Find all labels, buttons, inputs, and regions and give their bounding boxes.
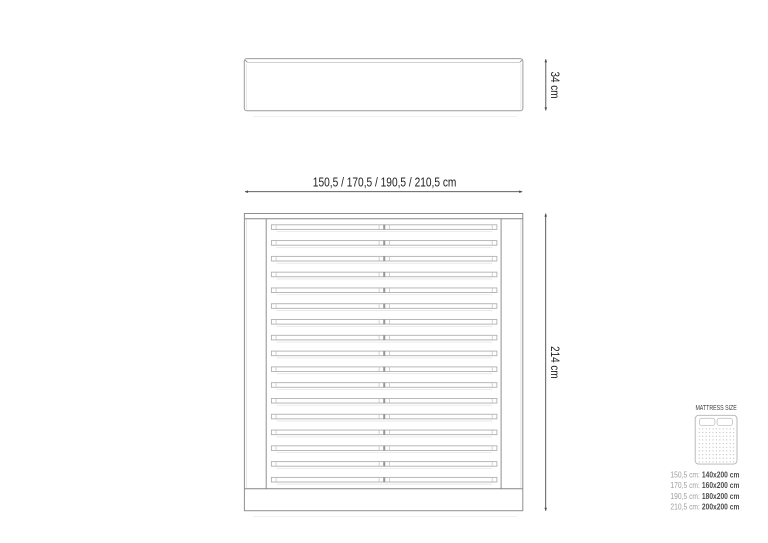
svg-text:140x200 cm: 140x200 cm — [702, 470, 740, 479]
svg-text:214 cm: 214 cm — [548, 346, 560, 379]
svg-text:160x200 cm: 160x200 cm — [702, 481, 740, 490]
svg-text:MATTRESS SIZE: MATTRESS SIZE — [695, 405, 737, 412]
svg-text:34 cm: 34 cm — [548, 72, 560, 99]
svg-text:200x200 cm: 200x200 cm — [702, 503, 740, 512]
svg-text:180x200 cm: 180x200 cm — [702, 492, 740, 501]
svg-text:150,5 cm:: 150,5 cm: — [670, 470, 700, 479]
svg-text:210,5 cm:: 210,5 cm: — [670, 503, 700, 512]
svg-text:170,5 cm:: 170,5 cm: — [670, 481, 700, 490]
svg-text:190,5 cm:: 190,5 cm: — [670, 492, 700, 501]
svg-text:150,5 / 170,5 / 190,5 / 210,5: 150,5 / 170,5 / 190,5 / 210,5 cm — [313, 175, 457, 189]
